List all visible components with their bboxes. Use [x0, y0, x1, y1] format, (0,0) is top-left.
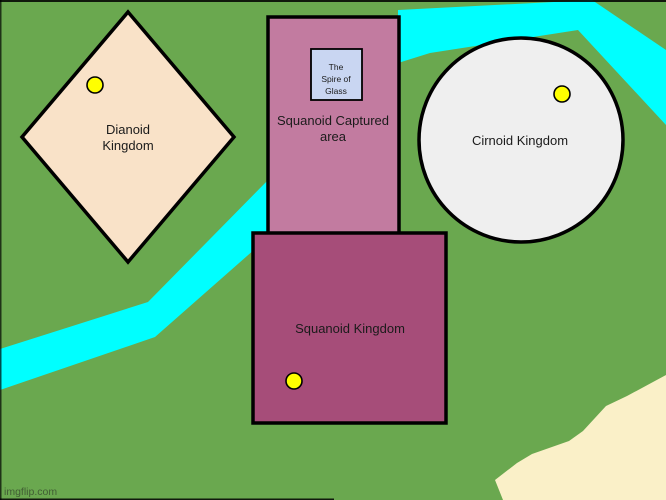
kingdom-map: Dianoid Kingdom Squanoid Captured area T… — [0, 0, 666, 500]
cirnoid-kingdom-label: Cirnoid Kingdom — [472, 133, 568, 148]
spire-of-glass-label-line1: The — [329, 62, 344, 72]
squanoid-city-marker — [286, 373, 302, 389]
cirnoid-city-marker — [554, 86, 570, 102]
dianoid-city-marker — [87, 77, 103, 93]
kingdom-map-canvas: Dianoid Kingdom Squanoid Captured area T… — [0, 0, 666, 500]
squanoid-kingdom-label: Squanoid Kingdom — [295, 321, 405, 336]
spire-of-glass-label-line2: Spire of — [321, 74, 351, 84]
dianoid-kingdom-label-line1: Dianoid — [106, 122, 150, 137]
map-border-left — [0, 0, 2, 500]
captured-area-label-line1: Squanoid Captured — [277, 113, 389, 128]
captured-area-label-line2: area — [320, 129, 347, 144]
imgflip-watermark: imgflip.com — [4, 486, 57, 498]
spire-of-glass-label-line3: Glass — [325, 86, 347, 96]
map-border-top — [0, 0, 666, 2]
dianoid-kingdom-label-line2: Kingdom — [102, 138, 153, 153]
